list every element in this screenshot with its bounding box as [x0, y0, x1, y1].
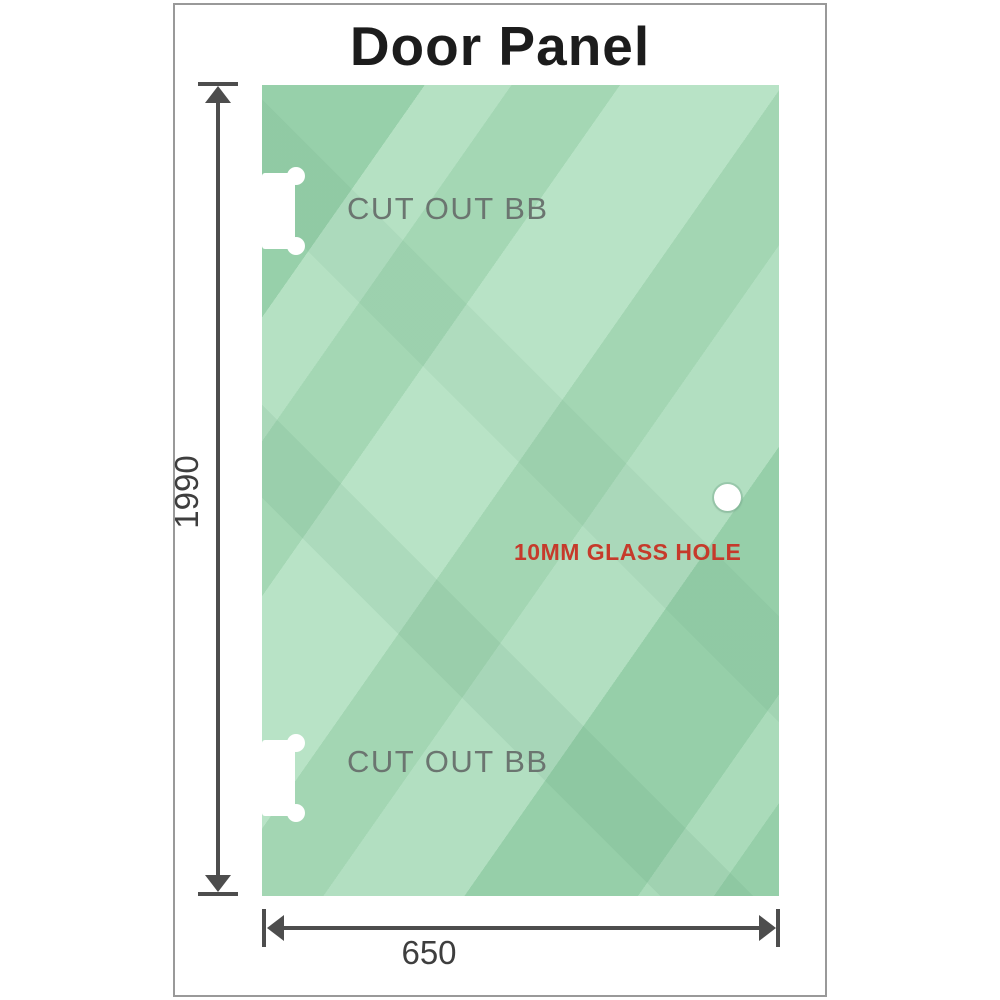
arrow-down-icon — [205, 875, 231, 892]
hinge-cutout-bottom-icon — [262, 732, 310, 824]
glass-hole-label: 10MM GLASS HOLE — [514, 539, 741, 566]
cutout-top-label: CUT OUT BB — [347, 191, 549, 227]
height-dimension-label: 1990 — [168, 422, 208, 562]
width-dimension-label: 650 — [379, 934, 479, 972]
hinge-cutout-shape — [262, 165, 310, 257]
height-dimension-bottom-tick — [198, 892, 238, 896]
door-panel-diagram: Door Panel CUT OUT BB CUT OUT BB 10MM GL… — [0, 0, 1000, 1000]
hinge-cutout-shape — [262, 732, 310, 824]
cutout-bottom-label: CUT OUT BB — [347, 744, 549, 780]
arrow-right-icon — [759, 915, 776, 941]
height-dimension-line — [216, 96, 220, 886]
hinge-cutout-top-icon — [262, 165, 310, 257]
width-dimension-left-tick — [262, 909, 266, 947]
width-dimension-right-tick — [776, 909, 780, 947]
width-dimension-line — [281, 926, 761, 930]
glass-hole-icon — [714, 484, 741, 511]
diagram-title: Door Panel — [173, 14, 827, 78]
